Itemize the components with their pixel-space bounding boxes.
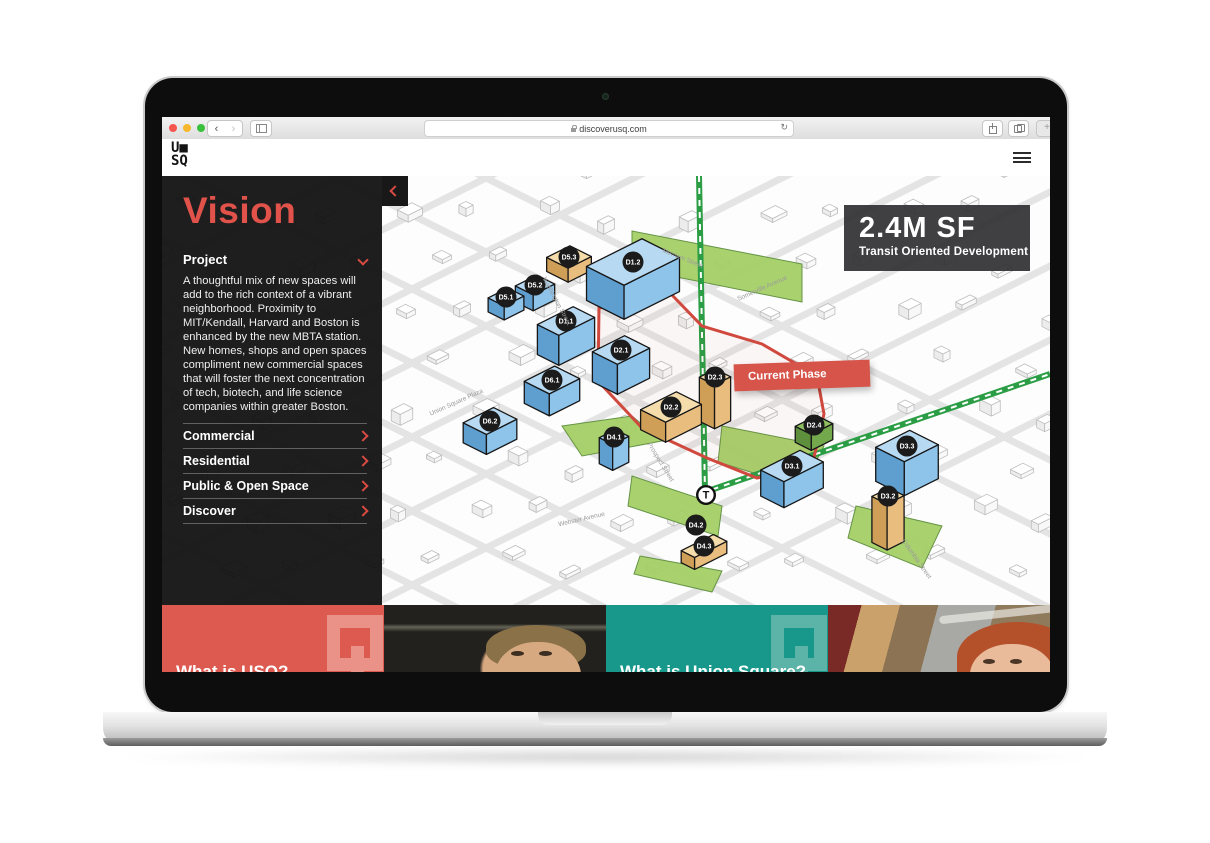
sidebar-collapse-button[interactable] [382, 176, 408, 206]
project-section-toggle[interactable]: Project [183, 252, 367, 267]
building-label: D5.2 [528, 283, 543, 290]
url-text: discoverusq.com [579, 124, 647, 134]
building-D2.3[interactable]: D2.3 [699, 367, 730, 429]
back-button[interactable]: ‹ [215, 123, 219, 135]
sidebar-item-commercial[interactable]: Commercial [183, 423, 367, 448]
bottom-tiles: What is USQ? What is Union Square? [162, 605, 1050, 672]
chevron-right-icon [357, 505, 368, 516]
sidebar-icon [256, 124, 267, 133]
building-label: D3.1 [785, 464, 800, 471]
tile-what-is-union-square[interactable]: What is Union Square? [606, 605, 828, 672]
building-D3.2[interactable]: D3.2 [872, 486, 904, 551]
photo-detail [1010, 659, 1022, 664]
laptop-lid-notch [538, 712, 672, 725]
building-label: D2.1 [614, 348, 629, 355]
building-label: D4.1 [607, 435, 622, 442]
website: U■ SQ D5.3D1.2D5.2D5.1D1.1D2.1D2.3D6.1D2… [162, 139, 1050, 672]
tile-label: What is USQ? [176, 662, 288, 672]
laptop-shadow [110, 748, 1100, 766]
zoom-window-button[interactable] [197, 124, 205, 132]
development-stats-badge: 2.4M SF Transit Oriented Development [844, 205, 1030, 271]
building-D4.2[interactable]: D4.2 [686, 515, 707, 536]
chevron-right-icon [357, 430, 368, 441]
tile-photo-woman[interactable] [828, 605, 1050, 672]
page: ‹ › discoverusq.com ↻ + U■ SQ [0, 0, 1210, 843]
building-label: D6.1 [545, 378, 560, 385]
sidebar-item-label: Residential [183, 454, 250, 468]
share-button[interactable] [982, 120, 1003, 137]
sidebar-item-label: Commercial [183, 429, 255, 443]
page-title: Vision [183, 190, 367, 232]
tabs-icon [1014, 125, 1022, 133]
building-label: D6.2 [483, 419, 498, 426]
photo-detail [983, 659, 995, 664]
usq-square-mark-icon [327, 615, 383, 671]
site-body: D5.3D1.2D5.2D5.1D1.1D2.1D2.3D6.1D2.2D6.2… [162, 176, 1050, 672]
share-icon [989, 126, 997, 134]
building-label: D2.2 [664, 405, 679, 412]
photo-detail [511, 651, 524, 656]
lock-icon [571, 128, 576, 132]
building-label: D1.2 [626, 260, 641, 267]
sidebar-item-residential[interactable]: Residential [183, 448, 367, 473]
photo-detail [939, 605, 1050, 625]
sidebar-toggle-button[interactable] [250, 120, 272, 137]
history-nav: ‹ › [207, 120, 243, 137]
tile-photo-man[interactable] [384, 605, 606, 672]
sidebar-item-label: Discover [183, 504, 236, 518]
usq-logo[interactable]: U■ SQ [171, 142, 188, 168]
building-label: D5.1 [499, 295, 514, 302]
building-label: D3.3 [900, 444, 915, 451]
building-label: D3.2 [881, 494, 896, 501]
sidebar-item-public-open-space[interactable]: Public & Open Space [183, 473, 367, 498]
building-label: D4.3 [697, 544, 712, 551]
photo-detail [539, 651, 552, 656]
close-window-button[interactable] [169, 124, 177, 132]
project-section-label: Project [183, 252, 227, 267]
sidebar-menu: Commercial Residential Public & Open Spa… [183, 423, 367, 524]
tab-overview-button[interactable] [1008, 120, 1029, 137]
reload-button[interactable]: ↻ [780, 122, 788, 133]
chevron-left-icon [389, 185, 400, 196]
forward-button[interactable]: › [232, 123, 236, 135]
minimize-window-button[interactable] [183, 124, 191, 132]
laptop-base [103, 712, 1107, 746]
address-bar[interactable]: discoverusq.com ↻ [424, 120, 794, 137]
building-label: D2.4 [807, 423, 822, 430]
current-phase-banner: Current Phase [734, 360, 871, 392]
usq-logo-line2: SQ [171, 155, 188, 168]
webcam-icon [602, 93, 609, 100]
project-description: A thoughtful mix of new spaces will add … [183, 274, 367, 414]
tile-what-is-usq[interactable]: What is USQ? [162, 605, 384, 672]
laptop-screen: ‹ › discoverusq.com ↻ + U■ SQ [162, 117, 1050, 672]
vision-sidebar: Vision Project A thoughtful mix of new s… [162, 176, 382, 605]
laptop-base-edge [103, 738, 1107, 746]
tile-label: What is Union Square? [620, 662, 806, 672]
chevron-right-icon [357, 480, 368, 491]
browser-toolbar: ‹ › discoverusq.com ↻ + [162, 117, 1050, 140]
sidebar-item-discover[interactable]: Discover [183, 498, 367, 523]
badge-subtitle: Transit Oriented Development [859, 246, 1030, 258]
building-label: D5.3 [562, 255, 577, 262]
new-tab-button[interactable]: + [1036, 120, 1050, 137]
laptop-frame: ‹ › discoverusq.com ↻ + U■ SQ [145, 78, 1067, 712]
building-label: D2.3 [708, 375, 723, 382]
svg-text:T: T [703, 490, 710, 502]
chevron-down-icon [357, 254, 368, 265]
menu-icon[interactable] [1013, 152, 1031, 164]
building-label: D4.2 [689, 523, 704, 530]
site-header: U■ SQ [162, 139, 1050, 176]
sidebar-item-label: Public & Open Space [183, 479, 309, 493]
badge-value: 2.4M SF [859, 212, 1030, 245]
mbta-station-marker[interactable]: T [696, 485, 716, 505]
chevron-right-icon [357, 455, 368, 466]
